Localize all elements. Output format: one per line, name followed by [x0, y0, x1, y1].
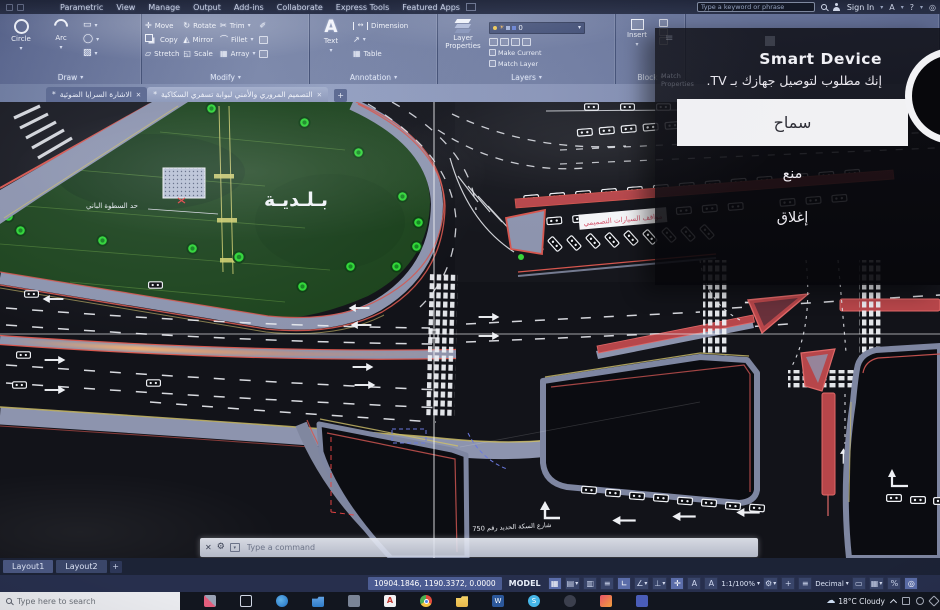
stretch-button[interactable]: ▱ Stretch — [145, 47, 179, 60]
file-tab-2-active[interactable]: * التصميم المروري والأمني لبوابة تسفري ا… — [147, 87, 328, 102]
text-icon: A — [324, 19, 337, 36]
circle-icon — [14, 19, 29, 34]
layer-tool-icon[interactable] — [489, 38, 498, 46]
model-space-button[interactable]: MODEL — [505, 579, 545, 588]
clean-screen-toggle[interactable]: ◎ — [904, 577, 918, 590]
file-tab-1[interactable]: * الاشارة السرايا الضوئية ✕ — [46, 87, 147, 102]
rectangle-tool-button[interactable]: ▭ ▾ — [83, 19, 99, 32]
mirror-button[interactable]: ◭ Mirror — [183, 33, 216, 46]
edge-browser-icon[interactable] — [276, 595, 288, 607]
search-icon — [6, 598, 12, 604]
quick-access-toolbar — [6, 4, 24, 11]
layout2-tab[interactable]: Layout2 — [56, 560, 106, 573]
ribbon-options-icon[interactable] — [466, 3, 476, 11]
ellipse-icon: ◯ — [83, 35, 93, 44]
deny-button[interactable]: منع — [677, 166, 908, 182]
ghost-menu-icon: ≡ — [665, 34, 677, 44]
layer-properties-button[interactable]: Layer Properties — [441, 16, 485, 71]
leader-button[interactable]: ↗ ▾ — [353, 33, 408, 46]
fillet-button[interactable]: ⌒ Fillet▾ — [220, 33, 255, 46]
command-line[interactable]: ✕ ⚙ ▾ — [200, 538, 758, 557]
hatch-icon: ▨ — [83, 49, 92, 58]
snap-toggle[interactable]: ▤▾ — [565, 577, 581, 590]
draw-panel-label[interactable]: Draw▾ — [3, 71, 138, 84]
autodesk-account-icon[interactable]: ◎ — [929, 3, 936, 12]
pencil-icon: ✐ — [259, 22, 266, 30]
annotation-panel-label[interactable]: Annotation▾ — [313, 71, 434, 84]
annotation-monitor-toggle[interactable]: + — [781, 577, 795, 590]
undo-icon[interactable] — [17, 4, 24, 11]
ghost-window-icon — [765, 36, 775, 46]
move-icon: ✛ — [145, 22, 152, 30]
copy-button[interactable]: Copy — [145, 33, 179, 46]
dimension-icon: ↔ — [353, 22, 368, 30]
block-b1 — [543, 353, 757, 503]
circle-tool-button[interactable]: Circle▾ — [3, 16, 39, 71]
move-button[interactable]: ✛ Move — [145, 19, 179, 32]
help-caret-icon[interactable]: ▾ — [920, 4, 923, 11]
skype-app-icon[interactable]: S — [528, 595, 540, 607]
rotate-button[interactable]: ↻ Rotate — [183, 19, 216, 32]
make-current-button[interactable]: Make Current — [489, 48, 585, 57]
rectangle-icon: ▭ — [83, 21, 92, 30]
scale-icon: ◱ — [183, 50, 191, 58]
tab-output[interactable]: Output — [193, 3, 221, 12]
polar-tracking-toggle[interactable]: ∠▾ — [634, 577, 649, 590]
visual-studio-icon[interactable] — [636, 595, 648, 607]
steam-app-icon[interactable] — [564, 595, 576, 607]
close-icon[interactable]: ✕ — [136, 91, 141, 99]
photos-app-icon[interactable] — [204, 595, 216, 607]
app-store-icon[interactable]: A — [889, 3, 894, 12]
tab-addins[interactable]: Add-ins — [234, 3, 264, 12]
recent-commands-icon[interactable]: ▾ — [230, 543, 240, 552]
tab-featured-apps[interactable]: Featured Apps — [402, 3, 460, 12]
infer-constraints-toggle[interactable]: ▥ — [583, 577, 597, 590]
layer-dropdown[interactable]: ☀ 0 ▾ — [489, 22, 585, 34]
menu-bar: Parametric View Manage Output Add-ins Co… — [0, 0, 940, 14]
draw-panel: Circle▾ Arc▾ ▭ ▾ ◯ ▾ ▨ ▾ — [0, 14, 142, 84]
layout1-tab[interactable]: Layout1 — [3, 560, 53, 573]
table-button[interactable]: ▦ Table — [353, 47, 408, 60]
tab-manage[interactable]: Manage — [148, 3, 180, 12]
layers-panel-label[interactable]: Layers▾ — [441, 71, 612, 84]
annotation-panel: A Text▾ ↔ Dimension ↗ ▾ ▦ Table Anno — [310, 14, 438, 84]
block-b2 — [846, 346, 940, 558]
table-icon: ▦ — [353, 50, 361, 58]
status-bar: 10904.1846, 1190.3372, 0.0000 MODEL ▦ ▤▾… — [0, 575, 940, 592]
trim-icon: ✂ — [220, 22, 227, 30]
crosswalk-main — [426, 274, 458, 417]
porkchop-island — [506, 210, 545, 254]
isolate-objects-toggle[interactable]: % — [887, 577, 901, 590]
stretch-icon: ▱ — [145, 50, 151, 58]
copy-icon — [145, 34, 153, 42]
array-button[interactable]: ▦ Array▾ — [220, 47, 255, 60]
modify-panel: ✛ Move Copy ▱ Stretch ↻ Rotate ◭ — [142, 14, 310, 84]
system-tray: ☁ 18°C Cloudy — [826, 597, 940, 606]
network-icon[interactable] — [902, 597, 910, 605]
keyword-search-input[interactable] — [697, 2, 815, 12]
explode-icon — [259, 36, 268, 44]
volume-icon[interactable] — [916, 597, 924, 605]
command-input[interactable] — [245, 542, 753, 553]
quick-properties-toggle[interactable]: ▭ — [852, 577, 866, 590]
ghost-panel-text: Match Properties — [661, 72, 713, 89]
annotation-visibility-toggle[interactable]: A — [687, 577, 701, 590]
workspace-switching-gear[interactable]: ⚙▾ — [763, 577, 778, 590]
allow-button[interactable]: سماح — [677, 99, 908, 146]
layer-tools-row — [489, 38, 585, 46]
osnap-toggle[interactable]: ⊥▾ — [652, 577, 667, 590]
close-icon[interactable]: ✕ — [205, 543, 212, 552]
task-view-icon[interactable] — [240, 595, 252, 607]
media-app-icon[interactable] — [600, 595, 612, 607]
arc-tool-button[interactable]: Arc▾ — [43, 16, 79, 71]
tab-view[interactable]: View — [116, 3, 135, 12]
taskbar-search-box[interactable]: Type here to search — [0, 592, 180, 610]
rotate-icon: ↻ — [183, 22, 190, 30]
units-icon[interactable]: ≡ — [798, 577, 812, 590]
pen-icon[interactable] — [928, 595, 939, 606]
layer-tool-icon[interactable] — [522, 38, 531, 46]
sign-in-button[interactable]: Sign In — [847, 3, 874, 12]
fillet-icon: ⌒ — [220, 36, 228, 44]
close-icon[interactable]: ✕ — [317, 91, 322, 99]
dynamic-input-toggle[interactable]: ≡ — [600, 577, 614, 590]
onedrive-folder-icon[interactable] — [312, 595, 324, 607]
layer-thaw-icon: ☀ — [499, 25, 504, 31]
new-layout-button[interactable]: + — [110, 561, 122, 573]
customize-icon[interactable]: ⚙ — [217, 543, 225, 552]
lock-ui-toggle[interactable]: ▦▾ — [869, 577, 885, 590]
annotation-scale-control[interactable]: 1:1/100%▾ — [721, 580, 760, 588]
modify-panel-label[interactable]: Modify▾ — [145, 71, 306, 84]
layer-lock-icon — [506, 26, 510, 30]
insert-icon — [631, 19, 644, 30]
tab-collaborate[interactable]: Collaborate — [277, 3, 323, 12]
monitor-photo: Parametric View Manage Output Add-ins Co… — [0, 0, 940, 610]
ortho-toggle[interactable]: ∟ — [617, 577, 631, 590]
explode-button[interactable] — [259, 33, 268, 46]
scale-button[interactable]: ◱ Scale — [183, 47, 216, 60]
dimension-button[interactable]: ↔ Dimension — [353, 19, 408, 32]
mirror-icon: ◭ — [183, 36, 189, 44]
chevron-up-icon[interactable] — [890, 598, 897, 605]
autocad-app-icon[interactable]: A — [384, 595, 396, 607]
person-icon — [833, 3, 841, 11]
new-drawing-tab-button[interactable]: + — [334, 89, 347, 102]
search-icon[interactable] — [821, 4, 827, 10]
layer-tool-icon[interactable] — [500, 38, 509, 46]
array-icon: ▦ — [220, 50, 228, 58]
leader-icon: ↗ — [353, 36, 360, 44]
text-tool-button[interactable]: A Text▾ — [313, 16, 349, 71]
ellipse-tool-button[interactable]: ◯ ▾ — [83, 33, 99, 46]
offset-icon — [259, 50, 268, 58]
layer-tool-icon[interactable] — [511, 38, 520, 46]
layer-properties-icon — [455, 19, 471, 33]
tv-brand-logo — [905, 48, 940, 144]
store-caret-icon[interactable]: ▾ — [901, 4, 904, 11]
layer-color-icon — [512, 26, 516, 30]
units-dropdown[interactable]: Decimal▾ — [815, 580, 849, 588]
layers-panel: Layer Properties ☀ 0 ▾ — [438, 14, 616, 84]
coordinates-readout: 10904.1846, 1190.3372, 0.0000 — [368, 577, 502, 590]
hatch-tool-button[interactable]: ▨ ▾ — [83, 47, 99, 60]
autoscale-toggle[interactable]: A — [704, 577, 718, 590]
sign-in-caret-icon[interactable]: ▾ — [880, 4, 883, 11]
overlay-message: إنك مطلوب لتوصيل جهازك بـ TV. — [706, 73, 882, 88]
overlay-title: Smart Device — [759, 50, 882, 68]
ribbon-tabs: Parametric View Manage Output Add-ins Co… — [60, 3, 460, 12]
make-current-icon — [489, 49, 496, 56]
layer-on-icon — [493, 26, 497, 30]
word-app-icon[interactable]: W — [492, 595, 504, 607]
object-snap-tracking-toggle[interactable]: ✛ — [670, 577, 684, 590]
insert-block-button[interactable]: Insert▾ — [619, 16, 655, 71]
windows-taskbar: Type here to search A W S ☁ 18°C Cloudy — [0, 592, 940, 610]
tab-express-tools[interactable]: Express Tools — [336, 3, 390, 12]
erase-button[interactable]: ✐ — [259, 19, 268, 32]
store-app-icon[interactable] — [348, 595, 360, 607]
arc-icon — [51, 16, 71, 36]
match-layer-icon — [489, 60, 496, 67]
east-median-island — [840, 299, 940, 311]
offset-button[interactable] — [259, 47, 268, 60]
trim-button[interactable]: ✂ Trim▾ — [220, 19, 255, 32]
weather-widget[interactable]: ☁ 18°C Cloudy — [826, 597, 885, 606]
create-block-icon[interactable] — [659, 19, 668, 27]
grid-toggle[interactable]: ▦ — [548, 577, 562, 590]
file-explorer-icon[interactable] — [456, 595, 468, 607]
help-icon[interactable]: ? — [910, 3, 914, 12]
chrome-browser-icon[interactable] — [420, 595, 432, 607]
tv-overlay: ≡ Match Properties Smart Device إنك مطلو… — [655, 28, 940, 285]
layout-tab-bar: Layout1 Layout2 + — [0, 558, 940, 575]
save-icon[interactable] — [6, 4, 13, 11]
match-layer-button[interactable]: Match Layer — [489, 59, 585, 68]
cloud-icon: ☁ — [826, 597, 835, 606]
close-overlay-button[interactable]: إغلاق — [677, 210, 908, 226]
tab-parametric[interactable]: Parametric — [60, 3, 103, 12]
